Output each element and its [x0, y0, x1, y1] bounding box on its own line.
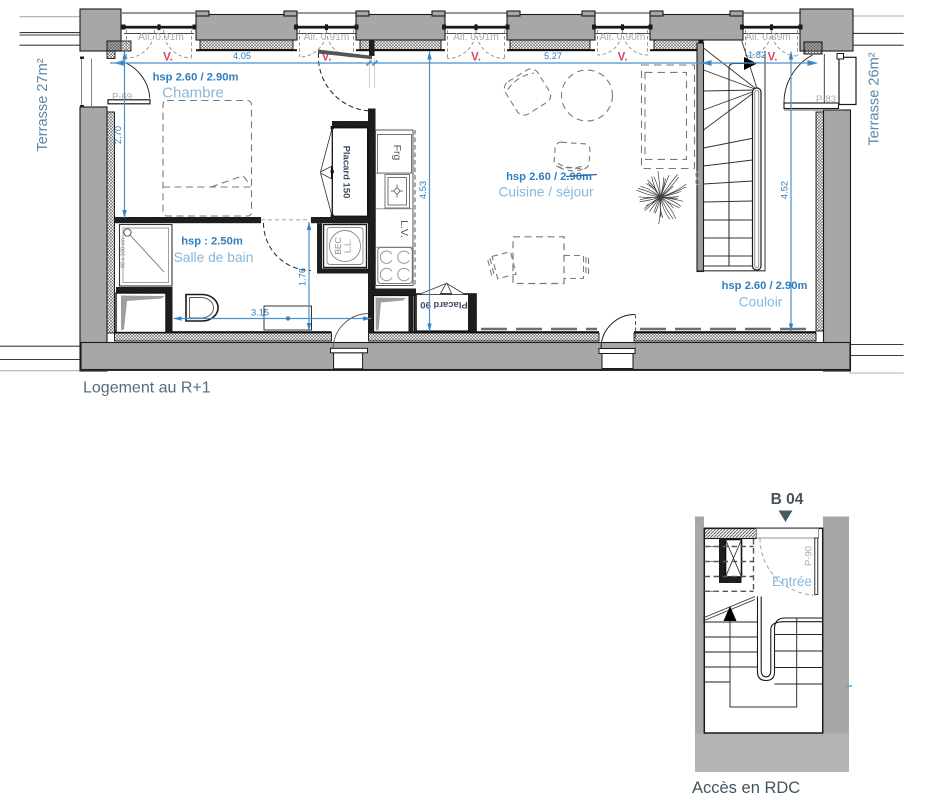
svg-text:P-69: P-69 [112, 91, 132, 102]
svg-text:Accès en RDC: Accès en RDC [692, 779, 800, 797]
svg-text:Placard 150: Placard 150 [341, 146, 352, 199]
svg-text:Chambre: Chambre [162, 85, 224, 102]
svg-text:80 x 100 cm: 80 x 100 cm [121, 238, 127, 268]
svg-text:1.82: 1.82 [748, 50, 766, 60]
svg-text:V.: V. [618, 51, 628, 63]
svg-text:Couloir: Couloir [739, 295, 783, 310]
svg-text:All. 0.91m: All. 0.91m [138, 32, 184, 43]
svg-text:All. 0.91m: All. 0.91m [304, 32, 350, 43]
svg-text:Terrasse 26m²: Terrasse 26m² [867, 52, 883, 145]
svg-text:4.52: 4.52 [780, 181, 790, 199]
svg-text:hsp 2.60 / 2.90m: hsp 2.60 / 2.90m [722, 280, 808, 292]
svg-text:V.: V. [768, 51, 778, 63]
svg-text:Entrée: Entrée [772, 574, 812, 589]
svg-text:Terrasse 27m²: Terrasse 27m² [35, 58, 51, 151]
svg-text:Salle de bain: Salle de bain [174, 250, 254, 265]
svg-text:3.15: 3.15 [251, 308, 269, 318]
svg-text:All. 0.91m: All. 0.91m [453, 32, 499, 43]
svg-text:V.: V. [471, 51, 481, 63]
svg-text:Frg: Frg [391, 145, 403, 161]
svg-text:Logement au R+1: Logement au R+1 [83, 380, 211, 397]
svg-text:B 04: B 04 [771, 491, 804, 508]
svg-text:BEC: BEC [333, 237, 343, 254]
svg-text:4.53: 4.53 [418, 181, 428, 199]
svg-text:Cuisine / séjour: Cuisine / séjour [498, 185, 593, 200]
svg-text:L.V.: L.V. [398, 220, 410, 238]
svg-text:All. 0.90m: All. 0.90m [600, 32, 646, 43]
svg-text:P-83: P-83 [816, 94, 836, 105]
svg-text:1.76: 1.76 [298, 268, 308, 286]
svg-text:4.05: 4.05 [233, 51, 251, 61]
svg-text:hsp 2.60 / 2.90m: hsp 2.60 / 2.90m [506, 171, 592, 183]
svg-text:V.: V. [163, 51, 173, 63]
svg-text:Placard 90: Placard 90 [420, 299, 468, 310]
svg-text:hsp : 2.50m: hsp : 2.50m [181, 236, 243, 248]
svg-text:P-90: P-90 [804, 546, 815, 566]
svg-text:5.27: 5.27 [544, 51, 562, 61]
svg-text:L.L.: L.L. [343, 239, 353, 253]
svg-text:hsp 2.60 / 2.90m: hsp 2.60 / 2.90m [153, 72, 239, 84]
svg-text:2.70: 2.70 [113, 126, 123, 144]
svg-text:All. 0.89m: All. 0.89m [745, 32, 791, 43]
